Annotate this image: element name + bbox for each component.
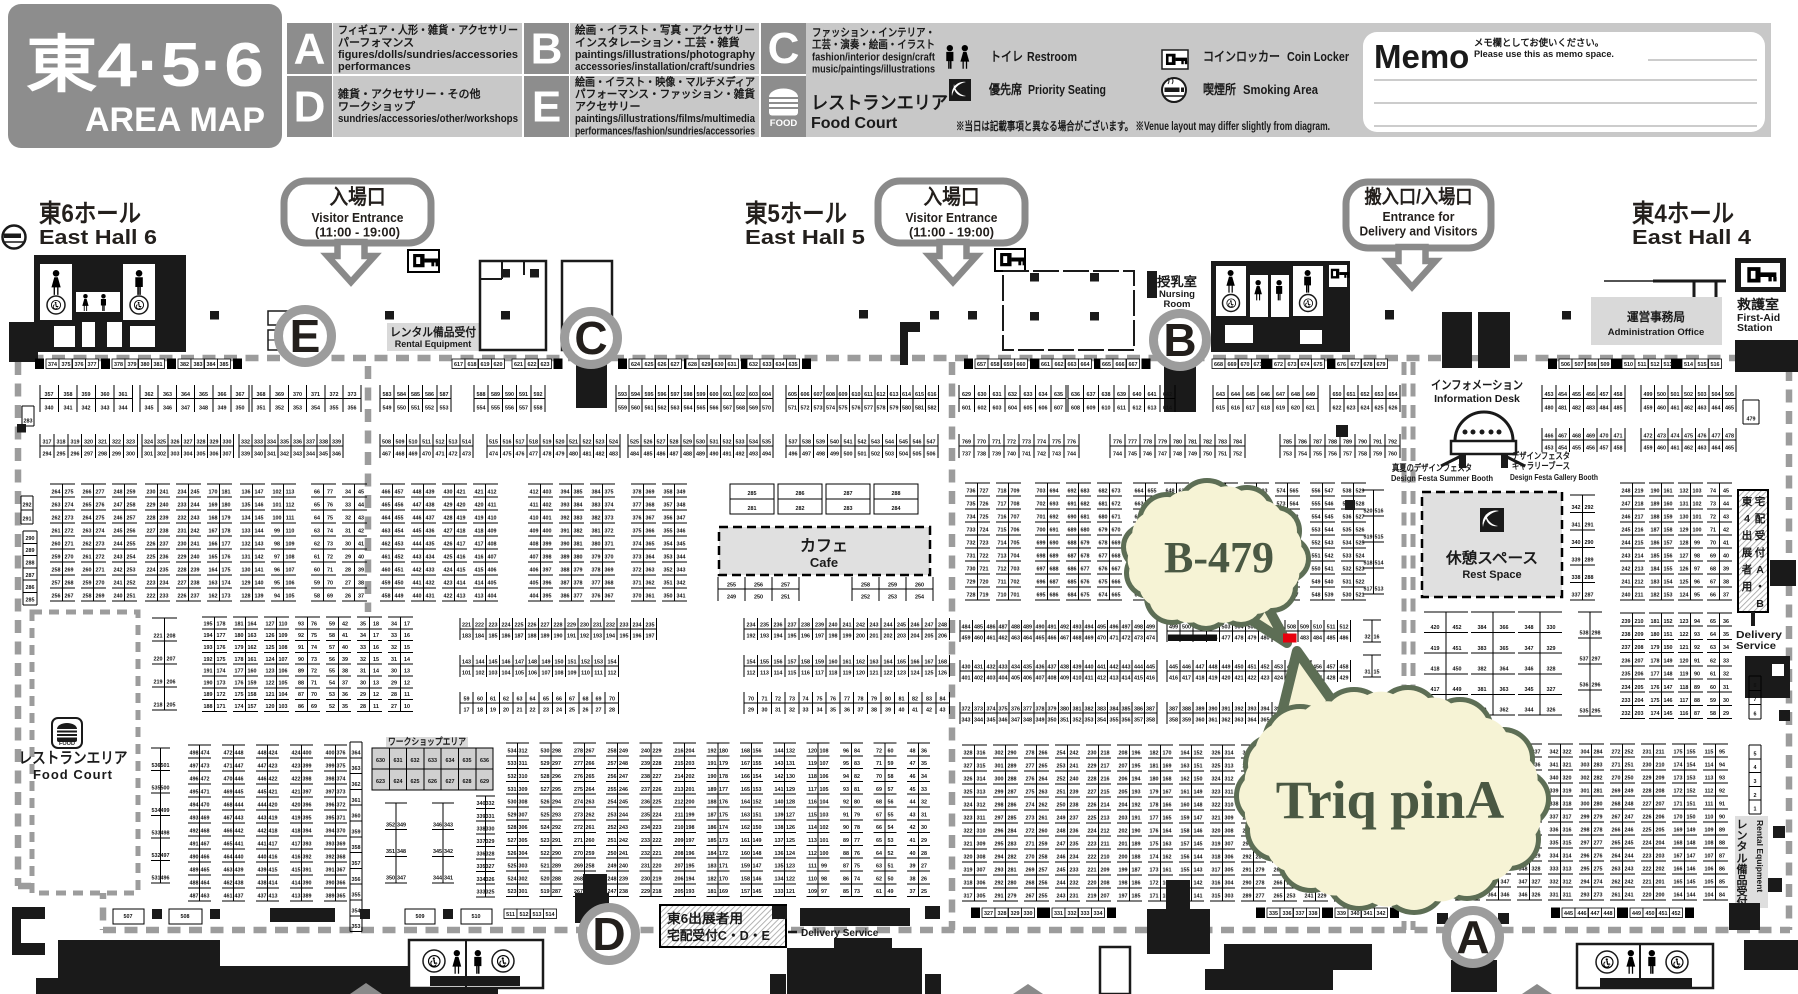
svg-text:777: 777	[1128, 440, 1137, 446]
svg-text:198: 198	[829, 634, 838, 640]
svg-text:84: 84	[940, 697, 946, 703]
svg-text:C: C	[574, 312, 607, 364]
svg-text:533: 533	[736, 440, 745, 446]
svg-text:484: 484	[630, 452, 639, 458]
svg-text:263: 263	[83, 529, 92, 535]
svg-text:705: 705	[1011, 541, 1020, 547]
svg-text:280: 280	[1008, 881, 1017, 887]
svg-text:35: 35	[342, 704, 348, 710]
svg-text:12: 12	[373, 692, 379, 698]
svg-text:245: 245	[191, 490, 200, 496]
svg-text:357: 357	[664, 503, 673, 509]
svg-text:113: 113	[1705, 776, 1714, 782]
svg-text:216: 216	[1635, 528, 1644, 534]
svg-text:451: 451	[395, 568, 404, 574]
svg-text:285: 285	[1008, 816, 1017, 822]
svg-text:59: 59	[464, 697, 470, 703]
svg-text:213: 213	[1101, 816, 1110, 822]
svg-text:337: 337	[306, 440, 315, 446]
svg-text:698: 698	[1037, 554, 1046, 560]
svg-text:4: 4	[1754, 765, 1757, 771]
svg-text:62: 62	[503, 697, 509, 703]
svg-text:56: 56	[888, 800, 894, 806]
svg-text:509: 509	[416, 914, 425, 920]
svg-text:616: 616	[1231, 406, 1240, 412]
svg-text:671: 671	[1112, 515, 1121, 521]
svg-text:466: 466	[201, 855, 210, 861]
svg-text:150: 150	[1664, 645, 1673, 651]
svg-text:97: 97	[274, 555, 280, 561]
svg-text:632: 632	[1008, 392, 1017, 398]
svg-text:456: 456	[395, 503, 404, 509]
svg-text:休憩スペース: 休憩スペース	[1445, 549, 1538, 567]
svg-text:322: 322	[1212, 803, 1221, 809]
svg-text:175: 175	[235, 692, 244, 698]
svg-text:146: 146	[1664, 698, 1673, 704]
svg-text:668: 668	[1112, 554, 1121, 560]
svg-text:383: 383	[592, 503, 601, 509]
svg-text:54: 54	[329, 681, 335, 687]
svg-text:461: 461	[1671, 406, 1680, 412]
svg-text:329: 329	[1547, 646, 1556, 652]
svg-text:263: 263	[1612, 867, 1621, 873]
svg-text:504: 504	[899, 452, 908, 458]
svg-text:660: 660	[1017, 362, 1026, 368]
svg-text:31: 31	[391, 657, 397, 663]
svg-text:691: 691	[1068, 502, 1077, 508]
svg-text:102: 102	[1693, 502, 1702, 508]
svg-text:780: 780	[1173, 440, 1182, 446]
svg-text:247: 247	[1625, 815, 1634, 821]
svg-text:417: 417	[292, 842, 301, 848]
svg-text:261: 261	[52, 529, 61, 535]
svg-text:341: 341	[1550, 763, 1559, 769]
svg-text:530: 530	[541, 749, 550, 755]
svg-text:189: 189	[1132, 842, 1141, 848]
svg-text:72: 72	[775, 697, 781, 703]
svg-text:247: 247	[1622, 502, 1631, 508]
svg-text:452: 452	[1672, 911, 1681, 917]
svg-text:327: 327	[486, 864, 495, 870]
svg-text:166: 166	[209, 542, 218, 548]
svg-text:223: 223	[489, 623, 498, 629]
svg-text:フィギュア・人形・雑貨・アクセサリー: フィギュア・人形・雑貨・アクセサリー	[338, 23, 518, 37]
svg-text:80: 80	[885, 697, 891, 703]
svg-text:35: 35	[921, 761, 927, 767]
svg-text:119: 119	[843, 671, 852, 677]
svg-text:474: 474	[489, 452, 498, 458]
svg-text:257: 257	[608, 761, 617, 767]
svg-text:301: 301	[519, 889, 528, 895]
svg-text:75: 75	[311, 633, 317, 639]
svg-text:485: 485	[1614, 406, 1623, 412]
svg-text:61: 61	[1710, 672, 1716, 678]
svg-text:166: 166	[741, 774, 750, 780]
svg-text:202: 202	[884, 634, 893, 640]
svg-text:Visitor Entrance: Visitor Entrance	[906, 211, 998, 225]
svg-text:196: 196	[633, 634, 642, 640]
svg-text:231: 231	[593, 623, 602, 629]
svg-text:356: 356	[352, 877, 361, 883]
svg-text:42: 42	[926, 708, 932, 714]
svg-text:391: 391	[303, 868, 312, 874]
svg-text:398: 398	[543, 555, 552, 561]
svg-text:147: 147	[515, 660, 524, 666]
svg-text:121: 121	[786, 889, 795, 895]
svg-text:437: 437	[1048, 665, 1057, 671]
svg-text:224: 224	[502, 623, 511, 629]
svg-text:180: 180	[1651, 632, 1660, 638]
svg-text:173: 173	[217, 681, 226, 687]
svg-text:238: 238	[191, 581, 200, 587]
svg-text:122: 122	[266, 681, 275, 687]
svg-text:271: 271	[574, 838, 583, 844]
svg-text:460: 460	[382, 568, 391, 574]
svg-text:639: 639	[1117, 392, 1126, 398]
svg-text:336: 336	[293, 440, 302, 446]
svg-text:Cafe: Cafe	[810, 555, 838, 570]
svg-text:168: 168	[1674, 841, 1683, 847]
svg-text:72: 72	[876, 749, 882, 755]
svg-text:392: 392	[1235, 707, 1244, 713]
svg-text:135: 135	[775, 864, 784, 870]
svg-text:239: 239	[815, 623, 824, 629]
svg-text:500: 500	[1657, 392, 1666, 398]
svg-text:523: 523	[596, 440, 605, 446]
svg-text:741: 741	[1022, 452, 1031, 458]
svg-text:446: 446	[235, 777, 244, 783]
svg-text:615: 615	[1216, 406, 1225, 412]
svg-text:97: 97	[821, 889, 827, 895]
svg-text:305: 305	[1225, 868, 1234, 874]
svg-text:30: 30	[921, 825, 927, 831]
svg-text:160: 160	[741, 851, 750, 857]
svg-text:361: 361	[119, 392, 128, 398]
svg-text:208: 208	[1101, 881, 1110, 887]
svg-text:657: 657	[977, 362, 986, 368]
svg-text:570: 570	[762, 406, 771, 412]
svg-text:532: 532	[508, 774, 517, 780]
svg-text:215: 215	[1635, 541, 1644, 547]
svg-text:673: 673	[1288, 362, 1297, 368]
svg-text:272: 272	[65, 529, 74, 535]
svg-text:262: 262	[586, 813, 595, 819]
svg-text:394: 394	[303, 829, 312, 835]
svg-text:441: 441	[235, 842, 244, 848]
svg-text:124: 124	[786, 851, 795, 857]
svg-text:676: 676	[1099, 567, 1108, 573]
svg-text:530: 530	[696, 440, 705, 446]
svg-text:231: 231	[641, 864, 650, 870]
svg-text:82: 82	[854, 774, 860, 780]
svg-text:144: 144	[255, 529, 264, 535]
svg-text:59: 59	[888, 761, 894, 767]
svg-text:62: 62	[314, 542, 320, 548]
svg-text:26: 26	[921, 877, 927, 883]
svg-text:197: 197	[815, 634, 824, 640]
svg-text:273: 273	[1594, 893, 1603, 899]
svg-text:入場口: 入場口	[924, 186, 980, 209]
svg-text:242: 242	[191, 529, 200, 535]
svg-text:210: 210	[1656, 763, 1665, 769]
svg-text:719: 719	[980, 593, 989, 599]
svg-text:503: 503	[1698, 392, 1707, 398]
svg-text:317: 317	[1212, 868, 1221, 874]
svg-text:27: 27	[345, 581, 351, 587]
svg-text:514: 514	[462, 440, 471, 446]
svg-text:449: 449	[1222, 665, 1231, 671]
svg-text:463: 463	[382, 529, 391, 535]
svg-text:632: 632	[411, 758, 420, 764]
svg-text:113: 113	[808, 838, 817, 844]
svg-text:トイレ: トイレ	[990, 49, 1023, 64]
svg-text:390: 390	[561, 542, 570, 548]
svg-text:341: 341	[444, 876, 453, 882]
svg-text:267: 267	[65, 594, 74, 600]
svg-text:229: 229	[1318, 894, 1327, 900]
svg-text:165: 165	[741, 787, 750, 793]
svg-text:572: 572	[801, 406, 810, 412]
svg-text:278: 278	[1256, 881, 1265, 887]
svg-text:479: 479	[556, 452, 565, 458]
svg-text:95: 95	[1719, 750, 1725, 756]
svg-text:306: 306	[519, 825, 528, 831]
svg-text:181: 181	[708, 889, 717, 895]
svg-text:373: 373	[633, 555, 642, 561]
svg-text:177: 177	[235, 669, 244, 675]
svg-text:155: 155	[760, 660, 769, 666]
svg-text:190: 190	[1651, 489, 1660, 495]
svg-text:583: 583	[383, 392, 392, 398]
svg-text:250: 250	[754, 595, 763, 601]
svg-text:524: 524	[508, 877, 517, 883]
svg-text:231: 231	[1070, 894, 1079, 900]
svg-text:513: 513	[1664, 362, 1673, 368]
svg-text:91: 91	[843, 813, 849, 819]
svg-text:164: 164	[209, 568, 218, 574]
svg-text:625: 625	[411, 779, 420, 785]
svg-text:227: 227	[147, 529, 156, 535]
svg-text:525: 525	[508, 864, 517, 870]
svg-text:516: 516	[1375, 509, 1384, 515]
svg-text:119: 119	[808, 761, 817, 767]
svg-text:40: 40	[910, 851, 916, 857]
svg-text:444: 444	[1134, 665, 1143, 671]
svg-text:629: 629	[962, 392, 971, 398]
svg-text:56: 56	[329, 657, 335, 663]
svg-text:582: 582	[928, 406, 937, 412]
svg-text:596: 596	[658, 392, 667, 398]
svg-text:487: 487	[190, 894, 199, 900]
svg-text:真夏のデザインフェスタ: 真夏のデザインフェスタ	[1392, 462, 1472, 473]
svg-text:14: 14	[373, 669, 379, 675]
svg-text:399: 399	[326, 764, 335, 770]
svg-text:525: 525	[541, 813, 550, 819]
svg-text:212: 212	[1101, 829, 1110, 835]
svg-text:297: 297	[84, 452, 93, 458]
svg-text:109: 109	[279, 633, 288, 639]
svg-text:324: 324	[144, 440, 153, 446]
svg-text:329: 329	[1011, 911, 1020, 917]
svg-text:497: 497	[1122, 625, 1131, 631]
svg-text:425: 425	[444, 555, 453, 561]
svg-text:36: 36	[921, 749, 927, 755]
svg-text:157: 157	[1664, 541, 1673, 547]
svg-text:166: 166	[1674, 867, 1683, 873]
svg-text:277: 277	[1256, 894, 1265, 900]
svg-text:529: 529	[541, 761, 550, 767]
svg-text:58: 58	[329, 633, 335, 639]
svg-text:131: 131	[786, 761, 795, 767]
svg-text:508: 508	[1588, 362, 1597, 368]
svg-text:330: 330	[1024, 911, 1033, 917]
svg-text:376: 376	[592, 594, 601, 600]
svg-text:256: 256	[127, 529, 136, 535]
svg-text:326: 326	[1547, 708, 1556, 714]
svg-text:145: 145	[1194, 842, 1203, 848]
svg-text:East Hall 5: East Hall 5	[745, 227, 865, 249]
svg-text:468: 468	[1073, 636, 1082, 642]
svg-text:782: 782	[1203, 440, 1212, 446]
svg-text:601: 601	[962, 406, 971, 412]
svg-text:36: 36	[1723, 619, 1729, 625]
svg-text:89: 89	[298, 669, 304, 675]
svg-text:270: 270	[1026, 855, 1035, 861]
svg-text:59: 59	[314, 581, 320, 587]
svg-text:230: 230	[147, 490, 156, 496]
svg-text:244: 244	[114, 542, 123, 548]
svg-text:666: 666	[1112, 580, 1121, 586]
svg-text:144: 144	[476, 660, 485, 666]
svg-text:69: 69	[876, 787, 882, 793]
svg-text:721: 721	[980, 567, 989, 573]
svg-text:213: 213	[675, 787, 684, 793]
svg-text:191: 191	[567, 634, 576, 640]
svg-text:208: 208	[1119, 751, 1128, 757]
svg-text:573: 573	[814, 406, 823, 412]
svg-text:123: 123	[897, 671, 906, 677]
svg-text:91: 91	[1719, 802, 1725, 808]
svg-text:123: 123	[786, 864, 795, 870]
svg-text:393: 393	[303, 842, 312, 848]
svg-text:169: 169	[209, 503, 218, 509]
svg-text:289: 289	[1008, 764, 1017, 770]
svg-text:124: 124	[1680, 593, 1689, 599]
svg-text:figures/dolls/sundries/accesso: figures/dolls/sundries/accessories	[338, 49, 518, 61]
svg-text:sundries/accessories/other/wor: sundries/accessories/other/workshops	[338, 113, 518, 125]
svg-text:224: 224	[1643, 841, 1652, 847]
svg-text:787: 787	[1313, 440, 1322, 446]
svg-text:102: 102	[820, 825, 829, 831]
svg-text:752: 752	[1233, 452, 1242, 458]
svg-text:162: 162	[248, 645, 257, 651]
svg-text:627: 627	[671, 362, 680, 368]
svg-text:96: 96	[843, 749, 849, 755]
svg-text:389: 389	[1196, 707, 1205, 713]
svg-text:14: 14	[404, 657, 410, 663]
svg-text:355: 355	[330, 406, 339, 412]
svg-text:459: 459	[382, 581, 391, 587]
svg-text:143: 143	[462, 660, 471, 666]
svg-text:560: 560	[631, 406, 640, 412]
svg-text:339: 339	[332, 440, 341, 446]
svg-text:35: 35	[360, 622, 366, 628]
svg-text:145: 145	[1664, 711, 1673, 717]
svg-text:140: 140	[775, 800, 784, 806]
svg-text:AREA MAP: AREA MAP	[85, 101, 265, 139]
svg-text:152: 152	[581, 660, 590, 666]
svg-text:332: 332	[241, 440, 250, 446]
svg-text:276: 276	[574, 774, 583, 780]
svg-text:357: 357	[352, 861, 361, 867]
svg-text:279: 279	[1256, 868, 1265, 874]
svg-text:728: 728	[967, 593, 976, 599]
svg-text:Priority Seating: Priority Seating	[1028, 83, 1106, 97]
svg-text:付: 付	[1755, 546, 1766, 559]
svg-text:paintings/illustrations/photog: paintings/illustrations/photography	[575, 49, 756, 61]
svg-text:743: 743	[1052, 452, 1061, 458]
svg-text:373: 373	[337, 790, 346, 796]
svg-text:669: 669	[1112, 541, 1121, 547]
svg-text:288: 288	[892, 491, 901, 497]
svg-text:149: 149	[1194, 790, 1203, 796]
svg-text:647: 647	[1276, 392, 1285, 398]
svg-text:146: 146	[1687, 867, 1696, 873]
svg-text:633: 633	[1024, 392, 1033, 398]
svg-text:60: 60	[477, 697, 483, 703]
svg-text:256: 256	[608, 774, 617, 780]
svg-text:298: 298	[1592, 631, 1601, 637]
svg-text:430: 430	[962, 665, 971, 671]
svg-text:372: 372	[633, 568, 642, 574]
svg-text:323: 323	[964, 816, 973, 822]
svg-text:522: 522	[1356, 580, 1365, 586]
svg-text:758: 758	[1358, 452, 1367, 458]
svg-text:367: 367	[236, 392, 245, 398]
svg-text:454: 454	[395, 529, 404, 535]
svg-text:457: 457	[1600, 446, 1609, 452]
svg-text:604: 604	[762, 392, 771, 398]
svg-text:300: 300	[995, 777, 1004, 783]
svg-text:103: 103	[489, 671, 498, 677]
svg-text:45: 45	[1723, 489, 1729, 495]
svg-text:506: 506	[927, 452, 936, 458]
svg-text:372: 372	[330, 392, 339, 398]
svg-text:415: 415	[475, 568, 484, 574]
svg-text:381: 381	[592, 529, 601, 535]
svg-text:149: 149	[1687, 828, 1696, 834]
svg-text:110: 110	[581, 671, 590, 677]
svg-text:490: 490	[710, 452, 719, 458]
svg-text:683: 683	[1081, 489, 1090, 495]
svg-text:466: 466	[382, 490, 391, 496]
svg-text:94: 94	[1694, 619, 1700, 625]
svg-text:470: 470	[422, 452, 431, 458]
svg-text:77: 77	[327, 490, 333, 496]
svg-text:363: 363	[352, 766, 361, 772]
svg-text:472: 472	[1644, 434, 1653, 440]
svg-text:307: 307	[519, 813, 528, 819]
svg-text:595: 595	[645, 392, 654, 398]
svg-text:684: 684	[1068, 593, 1077, 599]
svg-text:239: 239	[641, 761, 650, 767]
svg-text:204: 204	[1635, 698, 1644, 704]
svg-text:731: 731	[967, 554, 976, 560]
svg-text:106: 106	[528, 671, 537, 677]
svg-text:169: 169	[1163, 764, 1172, 770]
svg-text:158: 158	[1181, 829, 1190, 835]
svg-text:A: A	[1756, 564, 1764, 576]
